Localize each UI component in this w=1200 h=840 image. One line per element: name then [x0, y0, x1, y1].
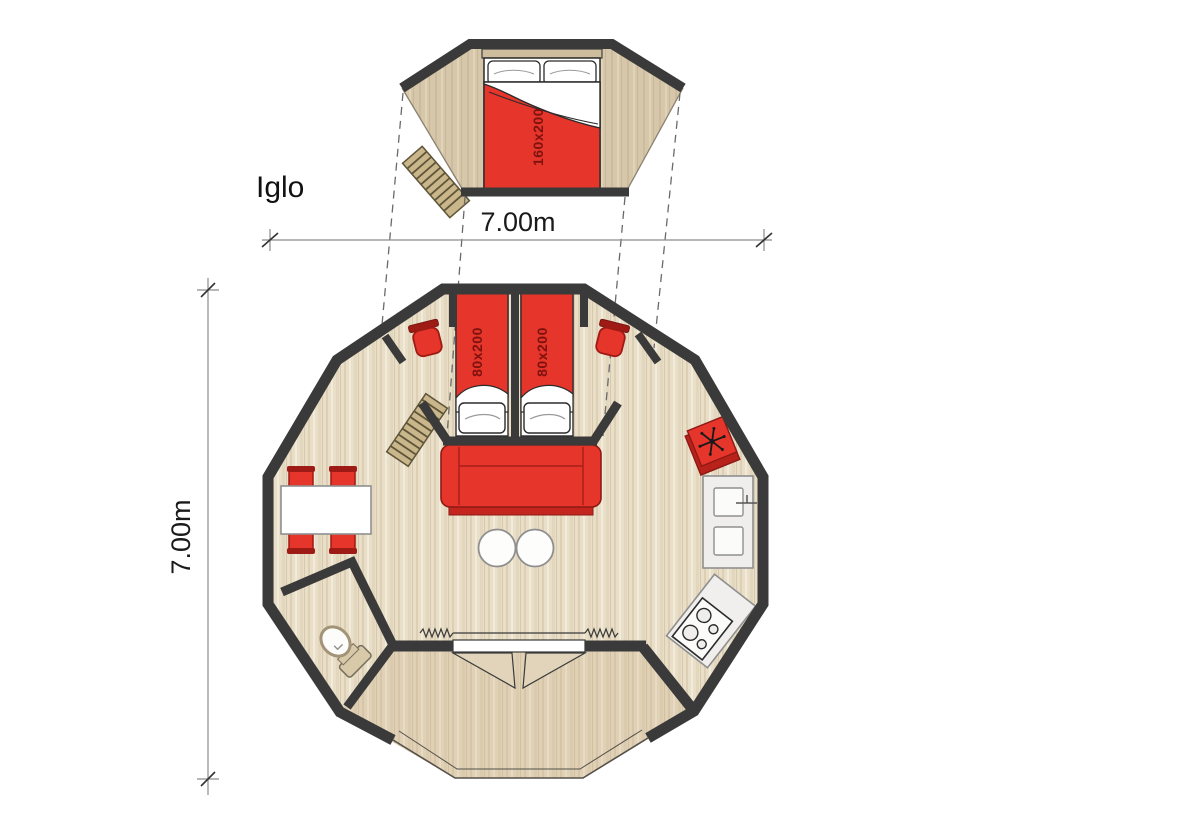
loft-room: 160x200	[402, 44, 683, 218]
counter-module	[714, 527, 743, 555]
plan-title: Iglo	[256, 171, 304, 204]
floor-plan-page: 160x200	[0, 0, 1200, 840]
terrace-floor	[340, 645, 694, 778]
dining-chair	[287, 532, 315, 554]
dimension-horizontal: 7.00m	[262, 207, 772, 251]
dining-chair	[329, 532, 357, 554]
pouf	[479, 530, 516, 567]
pouf	[517, 530, 554, 567]
bed-right-size-label: 80x200	[534, 327, 550, 377]
dining-chair	[287, 466, 315, 488]
bed-left-size-label: 80x200	[469, 327, 485, 377]
door-sill	[453, 640, 585, 652]
dining-table	[281, 486, 371, 534]
loft-double-bed: 160x200	[482, 49, 602, 192]
height-dimension-label: 7.00m	[166, 499, 196, 574]
loft-bed-size-label: 160x200	[530, 108, 546, 166]
headboard	[482, 49, 602, 58]
bed-single-right: 80x200	[521, 291, 573, 436]
dimension-vertical: 7.00m	[166, 278, 219, 795]
sink	[714, 488, 743, 516]
kitchen-sink-counter	[703, 476, 757, 568]
dining-chair	[329, 466, 357, 488]
floor-plan-drawing: 160x200	[0, 0, 1200, 840]
bed-single-left: 80x200	[456, 291, 508, 436]
width-dimension-label: 7.00m	[480, 207, 555, 237]
sofa	[441, 445, 601, 515]
